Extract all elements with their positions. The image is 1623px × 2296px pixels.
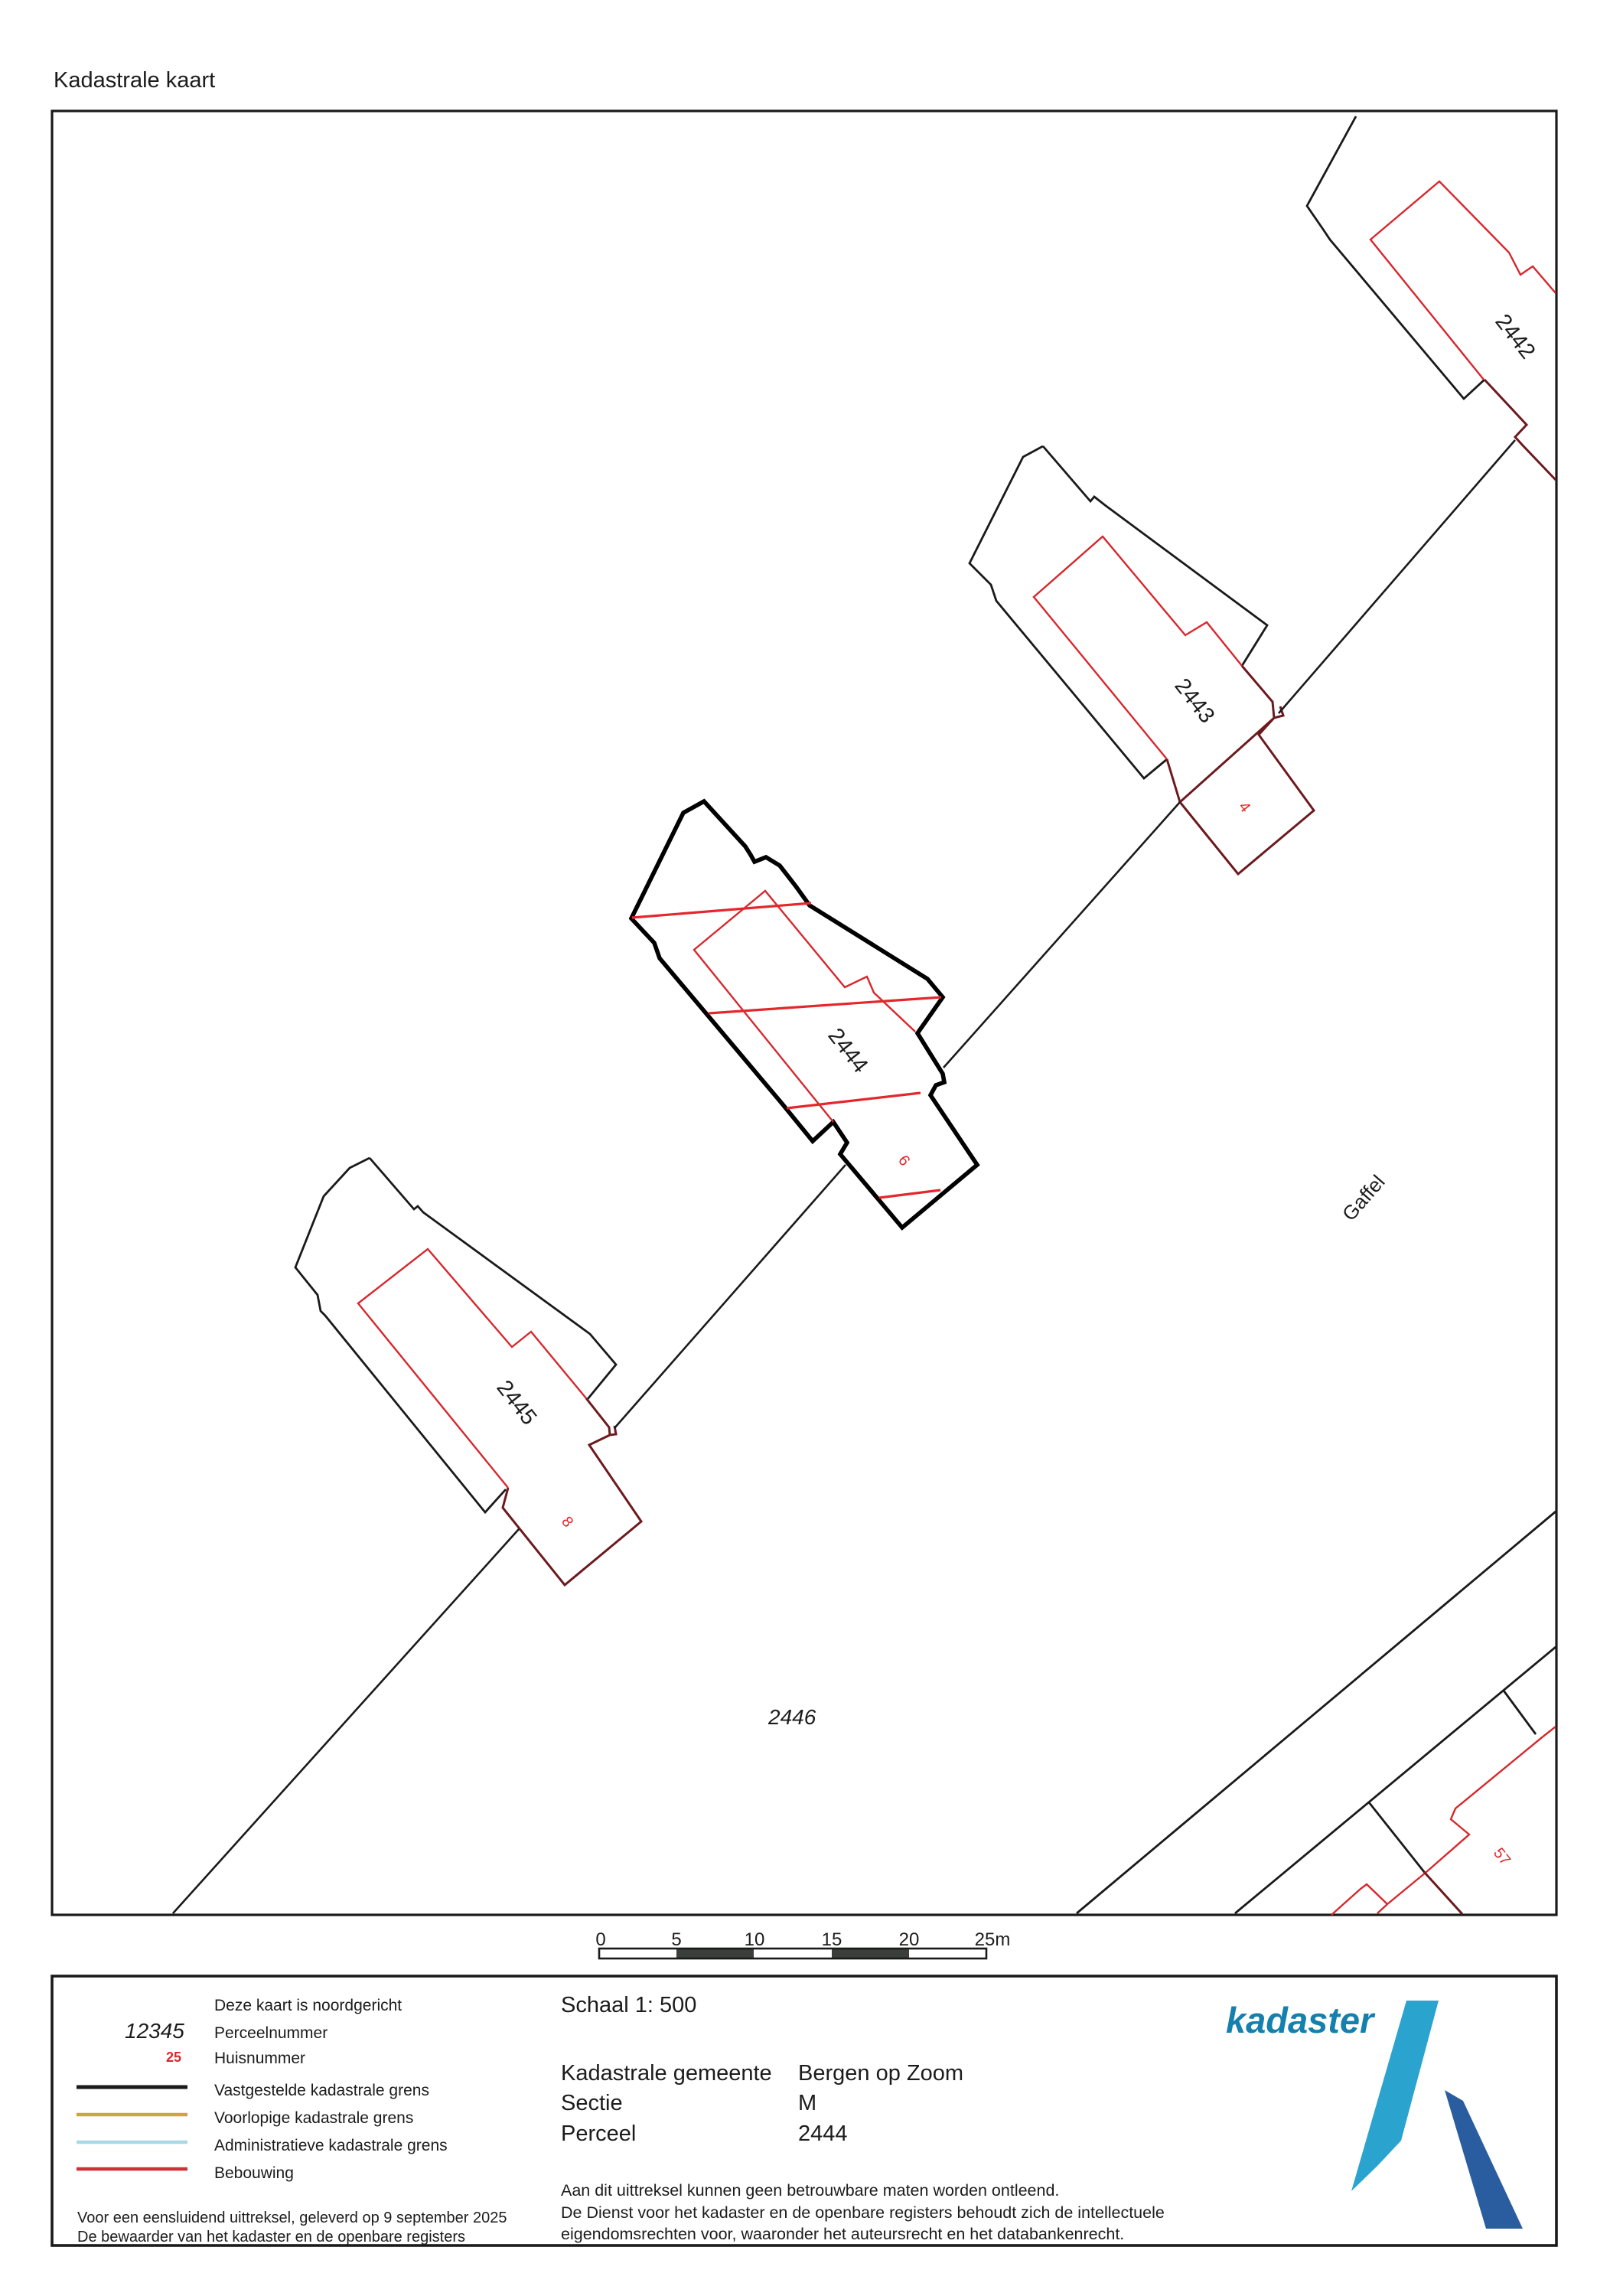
svg-text:10: 10 [745,1929,765,1950]
svg-text:Sectie: Sectie [561,2091,623,2115]
svg-text:12345: 12345 [125,2019,184,2043]
svg-text:2442: 2442 [1490,310,1540,364]
svg-text:Kadastrale kaart: Kadastrale kaart [54,68,215,93]
svg-text:4: 4 [1235,799,1253,816]
svg-text:Gaffel: Gaffel [1338,1170,1390,1225]
svg-text:Kadastrale gemeente: Kadastrale gemeente [561,2061,772,2086]
svg-text:Bergen op Zoom: Bergen op Zoom [798,2061,963,2086]
svg-text:Bebouwing: Bebouwing [214,2164,294,2182]
svg-text:2444: 2444 [798,2122,848,2146]
svg-text:Perceelnummer: Perceelnummer [214,2024,328,2042]
svg-text:15: 15 [822,1929,842,1950]
svg-text:Huisnummer: Huisnummer [214,2050,305,2067]
svg-text:5: 5 [671,1929,681,1950]
svg-text:Aan dit uittreksel kunnen geen: Aan dit uittreksel kunnen geen betrouwba… [561,2181,1059,2200]
svg-text:6: 6 [895,1153,913,1169]
svg-text:De Dienst voor het kadaster en: De Dienst voor het kadaster en de openba… [561,2203,1165,2222]
svg-text:Vastgestelde kadastrale grens: Vastgestelde kadastrale grens [214,2082,429,2099]
svg-text:0: 0 [595,1929,605,1950]
svg-text:Schaal 1: 500: Schaal 1: 500 [561,1993,696,2017]
svg-text:20: 20 [899,1929,920,1950]
svg-text:2443: 2443 [1169,674,1219,729]
svg-text:Voor een eensluidend uittrekse: Voor een eensluidend uittreksel, gelever… [77,2210,507,2226]
svg-text:Perceel: Perceel [561,2122,636,2146]
svg-text:kadaster: kadaster [1226,2000,1376,2040]
svg-text:Administratieve kadastrale gre: Administratieve kadastrale grens [214,2137,448,2154]
svg-text:De bewaarder van het kadaster: De bewaarder van het kadaster en de open… [77,2229,465,2245]
svg-text:Voorlopige kadastrale grens: Voorlopige kadastrale grens [214,2109,413,2127]
svg-text:57: 57 [1490,1845,1514,1869]
svg-text:2445: 2445 [491,1376,541,1430]
svg-text:25: 25 [166,2050,181,2065]
svg-text:eigendomsrechten voor, waarond: eigendomsrechten voor, waaronder het aut… [561,2225,1124,2243]
svg-text:2444: 2444 [823,1024,872,1078]
svg-text:2446: 2446 [768,1705,816,1729]
svg-text:Deze kaart is noordgericht: Deze kaart is noordgericht [214,1997,402,2014]
svg-text:25m: 25m [975,1929,1011,1950]
svg-text:M: M [798,2091,816,2115]
svg-text:8: 8 [558,1514,576,1531]
